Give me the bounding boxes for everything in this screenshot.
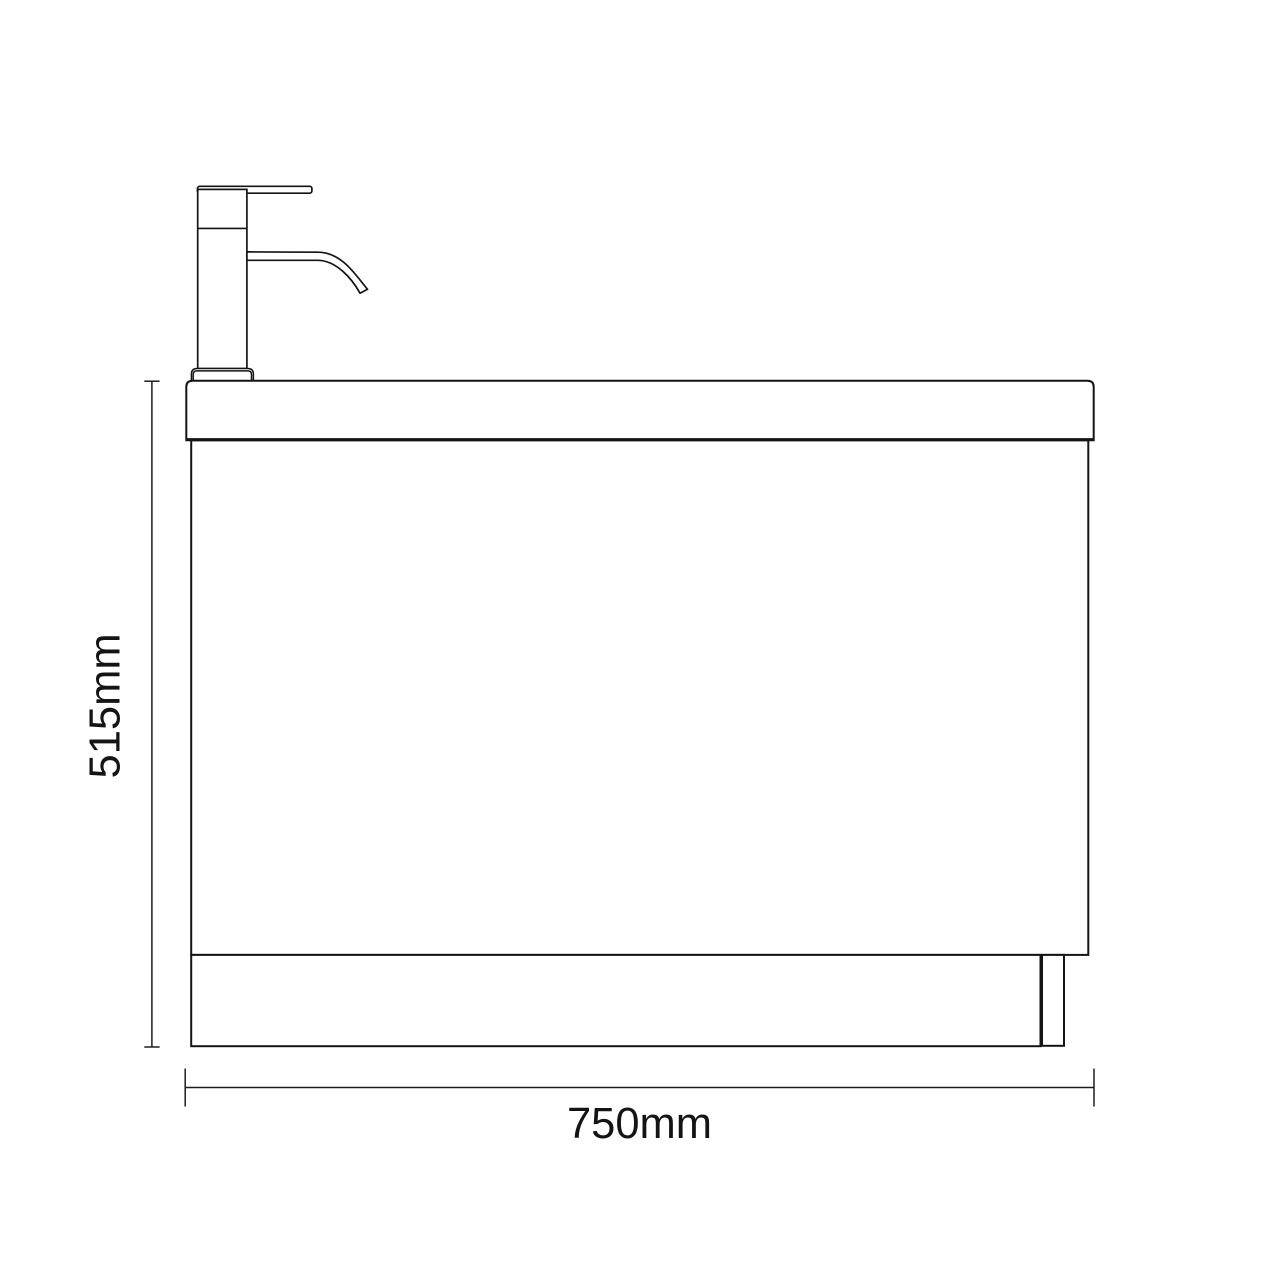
svg-text:515mm: 515mm bbox=[82, 633, 130, 778]
svg-text:750mm: 750mm bbox=[567, 1100, 712, 1148]
